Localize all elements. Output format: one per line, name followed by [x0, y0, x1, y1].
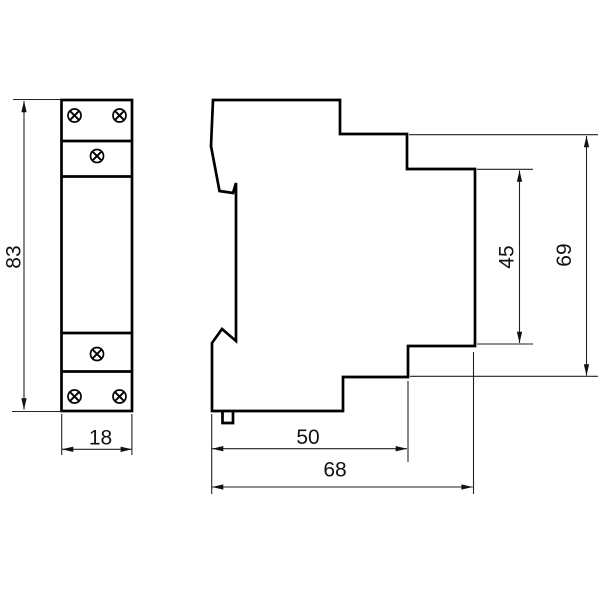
dim-rear-height-label: 45 — [496, 245, 519, 268]
din-clip-tab — [223, 411, 234, 423]
dim-front-width: 18 — [62, 414, 132, 455]
side-view — [211, 100, 475, 423]
dim-front-height-label: 83 — [3, 245, 26, 268]
dim-rear-height: 45 — [477, 169, 533, 344]
front-view — [62, 100, 133, 411]
dim-overall-height-label: 69 — [553, 243, 576, 266]
drawing-canvas: 83 18 50 68 45 — [0, 0, 600, 600]
technical-drawing: 83 18 50 68 45 — [0, 0, 600, 600]
side-profile-outline — [211, 100, 475, 411]
dim-rail-depth-label: 50 — [296, 426, 319, 449]
dim-front-width-label: 18 — [89, 427, 112, 450]
dim-overall-depth-label: 68 — [323, 459, 346, 482]
front-view-body — [62, 100, 133, 411]
dim-front-height: 83 — [3, 100, 62, 412]
